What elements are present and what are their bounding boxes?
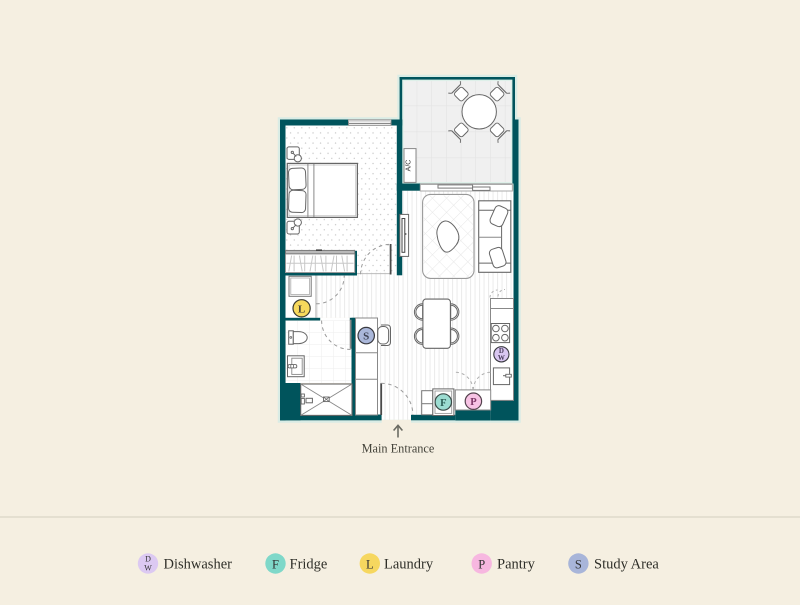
svg-text:F: F [272,557,279,571]
svg-text:D: D [145,555,151,564]
svg-text:Laundry: Laundry [384,556,434,572]
svg-text:W: W [144,563,152,572]
svg-text:S: S [363,331,369,343]
svg-text:Fridge: Fridge [290,556,328,572]
svg-text:W: W [498,354,505,362]
svg-text:F: F [440,398,446,409]
svg-text:Dishwasher: Dishwasher [164,556,233,572]
svg-text:Study Area: Study Area [594,556,659,572]
svg-text:P: P [478,557,485,571]
svg-text:A/C: A/C [406,160,413,172]
svg-text:Pantry: Pantry [497,556,536,572]
svg-text:P: P [470,397,477,408]
svg-text:Main Entrance: Main Entrance [362,442,435,456]
svg-text:S: S [575,557,582,571]
svg-text:L: L [298,303,305,315]
svg-text:L: L [366,557,374,571]
